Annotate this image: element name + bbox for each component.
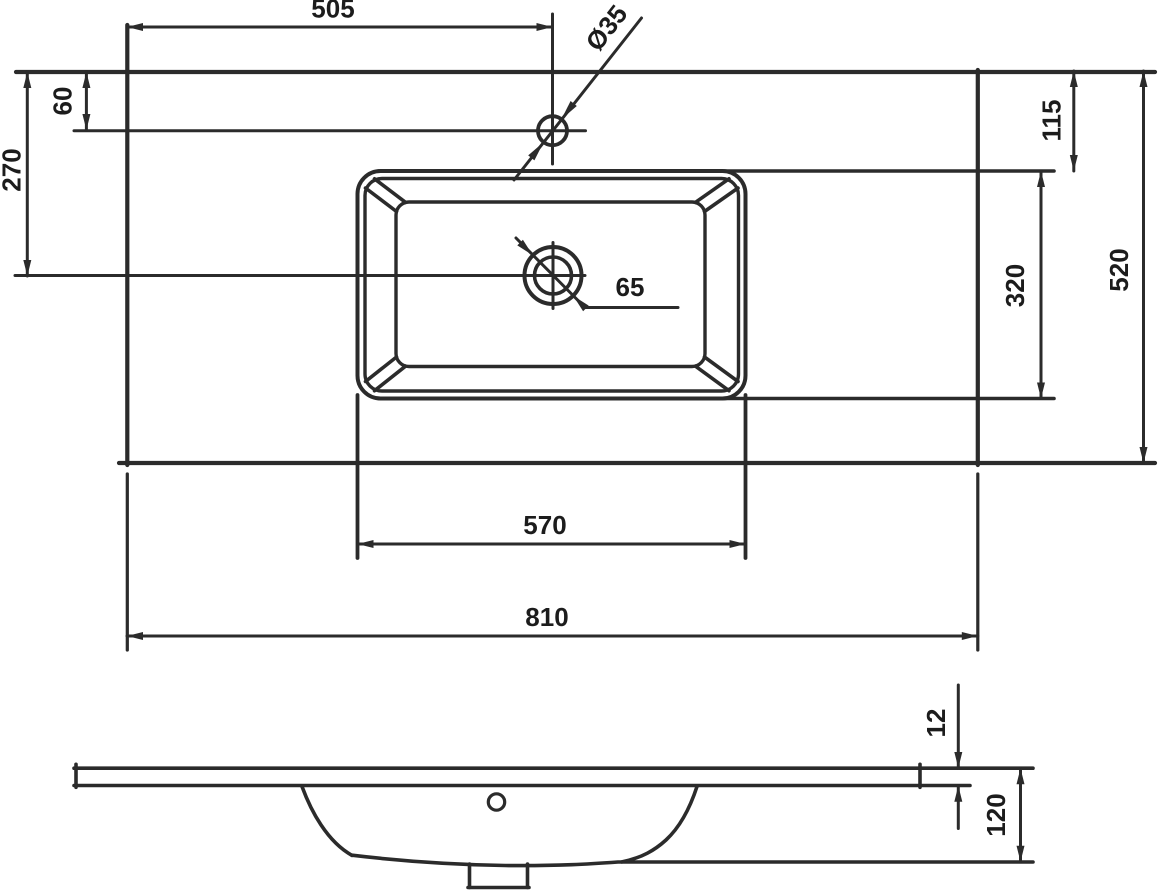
- svg-text:520: 520: [1104, 248, 1134, 291]
- svg-text:270: 270: [0, 148, 27, 191]
- svg-text:65: 65: [616, 272, 645, 302]
- svg-text:810: 810: [525, 602, 568, 632]
- svg-text:120: 120: [981, 793, 1011, 836]
- svg-text:115: 115: [1037, 100, 1067, 142]
- svg-text:60: 60: [48, 87, 78, 116]
- svg-text:570: 570: [523, 510, 566, 540]
- svg-text:505: 505: [311, 0, 354, 24]
- svg-text:12: 12: [921, 709, 951, 738]
- svg-text:320: 320: [1000, 264, 1030, 307]
